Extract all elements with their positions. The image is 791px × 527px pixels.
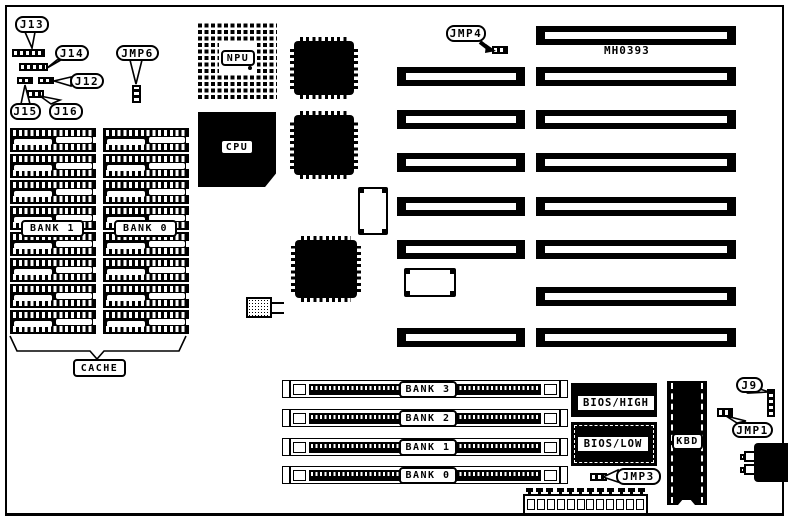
cache-chip-part xyxy=(149,189,185,195)
din-prong xyxy=(744,464,756,475)
oscillator xyxy=(246,297,272,318)
simm-bank-label: BANK 1 xyxy=(399,439,457,456)
qfp-chip xyxy=(291,236,361,302)
cache-chip-part xyxy=(107,139,145,145)
cache-chip-part xyxy=(186,267,189,273)
cache-chip-part xyxy=(107,165,145,171)
power-connector-part-part xyxy=(606,499,614,510)
cache-chip-part xyxy=(56,137,92,143)
cache-chip xyxy=(10,128,96,152)
isa-slot-extension xyxy=(397,110,525,129)
cache-chip-part xyxy=(149,293,185,299)
cache-chip-part xyxy=(93,189,96,195)
qfp-chip xyxy=(290,111,358,179)
simm-socket-part xyxy=(544,442,557,453)
cache-chip-part xyxy=(14,191,52,197)
isa-slot-extension xyxy=(397,153,525,172)
power-connector-part-part xyxy=(537,499,545,510)
simm-socket-part xyxy=(544,384,557,395)
isa-slot-main xyxy=(536,197,736,216)
cache-chip-part xyxy=(56,293,92,299)
cache-chip-part xyxy=(106,156,186,162)
qfp-chip xyxy=(290,37,358,99)
power-connector-part-part xyxy=(586,499,594,510)
simm-socket-part xyxy=(289,439,291,455)
cache-chip-part xyxy=(93,241,96,247)
isa-slot-main xyxy=(536,110,736,129)
cache-chip-part xyxy=(149,319,185,325)
cache-chip xyxy=(10,180,96,204)
callout-j9: J9 xyxy=(736,377,763,393)
cache-chip-part xyxy=(14,165,52,171)
jumper-block-j15 xyxy=(17,77,33,84)
cache-chip-part xyxy=(13,286,93,292)
simm-socket-part xyxy=(289,467,291,483)
cache-chip-part xyxy=(107,269,145,275)
simm-socket-part xyxy=(293,470,306,481)
jumper-block-j16 xyxy=(27,90,44,98)
simm-socket-part xyxy=(289,381,291,397)
power-connector-part-part xyxy=(616,499,624,510)
cache-chip-part xyxy=(106,312,186,318)
motherboard-diagram: BANK 1BANK 0CACHENPUCPUMH0393BANK 3BANK … xyxy=(0,0,791,527)
cache-chip-part xyxy=(106,260,186,266)
power-connector-part-part xyxy=(596,499,604,510)
jumper-block-jmp4-part xyxy=(494,48,506,52)
callout-jmp6: JMP6 xyxy=(116,45,159,61)
jumper-block-j16-part xyxy=(29,92,42,96)
cache-chip xyxy=(103,180,189,204)
cache-chip xyxy=(10,284,96,308)
cache-chip-part xyxy=(56,241,92,247)
jumper-block-j15-part xyxy=(19,79,31,82)
simm-socket-part xyxy=(293,413,306,424)
jumper-block-jmp6-part xyxy=(134,87,139,101)
npu-label: NPU xyxy=(221,50,255,66)
isa-slot-main xyxy=(536,26,736,45)
isa-slot-main xyxy=(536,153,736,172)
npu-pin1-dot xyxy=(248,66,252,70)
simm-socket-part xyxy=(289,410,291,426)
cache-chip-part xyxy=(93,293,96,299)
power-connector-part-part xyxy=(577,499,585,510)
din-prong-tab xyxy=(740,467,745,473)
power-connector xyxy=(523,488,648,515)
cache-chip-part xyxy=(107,295,145,301)
power-connector-part-part xyxy=(547,499,555,510)
qfp-chip-part xyxy=(294,41,354,95)
power-connector-part-part xyxy=(527,499,535,510)
cache-chip-part xyxy=(56,319,92,325)
jumper-block-jmp4 xyxy=(492,46,508,54)
cache-chip-part xyxy=(186,163,189,169)
kbd-label: KBD xyxy=(672,433,703,450)
cache-chip-part xyxy=(107,191,145,197)
power-connector-part xyxy=(523,494,648,515)
isa-slot-extension xyxy=(397,240,525,259)
empty-socket-horizontal xyxy=(404,268,456,297)
jumper-block-jmp1 xyxy=(717,408,733,417)
callout-jmp4: JMP4 xyxy=(446,25,486,42)
cache-chip-part xyxy=(13,208,93,214)
simm-socket-part xyxy=(559,467,561,483)
cache-chip-part xyxy=(14,269,52,275)
simm-socket-part xyxy=(544,413,557,424)
cache-chip-part xyxy=(13,312,93,318)
simm-bank-label: BANK 0 xyxy=(399,467,457,484)
cache-chip-part xyxy=(186,137,189,143)
cache-bank1-label: BANK 1 xyxy=(21,220,84,237)
cache-chip-part xyxy=(13,182,93,188)
cache-chip-part xyxy=(106,182,186,188)
jumper-block-j14-part xyxy=(21,65,46,69)
cache-chip-part xyxy=(149,241,185,247)
din-prong xyxy=(744,451,756,462)
cache-chip-part xyxy=(107,243,145,249)
simm-socket-part xyxy=(559,439,561,455)
cache-chip-part xyxy=(106,130,186,136)
cache-chip-part xyxy=(93,163,96,169)
cache-chip-part xyxy=(186,319,189,325)
callout-j15: J15 xyxy=(10,103,41,120)
cache-chip xyxy=(10,154,96,178)
cache-chip-part xyxy=(93,319,96,325)
oscillator-lead xyxy=(272,302,284,304)
power-connector-part-part xyxy=(567,499,575,510)
cache-chip xyxy=(10,258,96,282)
cache-chip-part xyxy=(14,243,52,249)
cache-bank0-label: BANK 0 xyxy=(114,220,177,237)
cache-chip-part xyxy=(149,163,185,169)
cache-chip-part xyxy=(186,241,189,247)
cache-chip-part xyxy=(14,321,52,327)
bios-high-label: BIOS/HIGH xyxy=(577,395,655,411)
isa-slot-main xyxy=(536,240,736,259)
callout-j13: J13 xyxy=(15,16,49,33)
simm-bank-label: BANK 3 xyxy=(399,381,457,398)
cache-chip-part xyxy=(14,139,52,145)
din-prong-tab xyxy=(740,454,745,460)
cache-chip-part xyxy=(149,267,185,273)
cache-chip-part xyxy=(93,215,96,221)
power-connector-part-part xyxy=(636,499,644,510)
jumper-block-jmp1-part xyxy=(719,410,731,415)
cache-chip-part xyxy=(107,321,145,327)
cache-chip-part xyxy=(149,137,185,143)
simm-socket-part xyxy=(559,410,561,426)
cache-chip-part xyxy=(186,293,189,299)
cache-chip-part xyxy=(13,260,93,266)
cache-chip-part xyxy=(93,137,96,143)
power-connector-part-part xyxy=(626,499,634,510)
board-marking: MH0393 xyxy=(604,44,664,58)
callout-j14: J14 xyxy=(55,45,89,61)
cache-chip-part xyxy=(56,189,92,195)
isa-slot-main xyxy=(536,67,736,86)
simm-bank-label: BANK 2 xyxy=(399,410,457,427)
jumper-block-jmp3-part xyxy=(592,475,605,479)
cache-chip-part xyxy=(186,189,189,195)
cache-label: CACHE xyxy=(73,359,126,377)
jumper-block-j12 xyxy=(38,77,54,84)
oscillator-lead xyxy=(272,312,284,314)
cache-chip-part xyxy=(56,163,92,169)
callout-j12: J12 xyxy=(70,73,104,89)
isa-slot-main xyxy=(536,328,736,347)
callout-j16: J16 xyxy=(49,103,83,120)
jumper-block-j9 xyxy=(767,389,775,417)
cpu-label: CPU xyxy=(220,139,254,155)
cache-chip xyxy=(103,310,189,334)
cache-chip-part xyxy=(106,286,186,292)
isa-slot-extension xyxy=(397,328,525,347)
cache-chip-part xyxy=(93,267,96,273)
cache-chip xyxy=(103,258,189,282)
keyboard-din-connector xyxy=(754,443,788,482)
jumper-block-j9-part xyxy=(769,391,773,415)
jumper-block-jmp6 xyxy=(132,85,141,103)
cache-chip-part xyxy=(106,208,186,214)
cache-chip xyxy=(103,128,189,152)
cache-chip-part xyxy=(186,215,189,221)
power-connector-part-part xyxy=(557,499,565,510)
simm-socket-part xyxy=(293,442,306,453)
cache-chip xyxy=(103,154,189,178)
qfp-chip-part xyxy=(295,240,357,298)
simm-socket-part xyxy=(293,384,306,395)
callout-jmp1: JMP1 xyxy=(732,422,773,438)
simm-socket-part xyxy=(559,381,561,397)
jumper-block-j13 xyxy=(12,49,45,57)
isa-slot-main xyxy=(536,287,736,306)
cache-chip-part xyxy=(56,267,92,273)
cache-chip-part xyxy=(13,156,93,162)
cache-chip xyxy=(103,284,189,308)
jumper-block-j14 xyxy=(19,63,48,71)
isa-slot-extension xyxy=(397,67,525,86)
jumper-block-j12-part xyxy=(40,79,52,82)
cache-chip-part xyxy=(14,295,52,301)
isa-slot-extension xyxy=(397,197,525,216)
jumper-block-j13-part xyxy=(14,51,43,55)
callout-jmp3: JMP3 xyxy=(616,468,661,485)
empty-socket-vertical xyxy=(358,187,388,235)
bios-low-label: BIOS/LOW xyxy=(577,436,649,452)
simm-socket-part xyxy=(544,470,557,481)
qfp-chip-part xyxy=(294,115,354,175)
cache-chip-part xyxy=(13,130,93,136)
cache-chip xyxy=(10,310,96,334)
jumper-block-jmp3 xyxy=(590,473,607,481)
